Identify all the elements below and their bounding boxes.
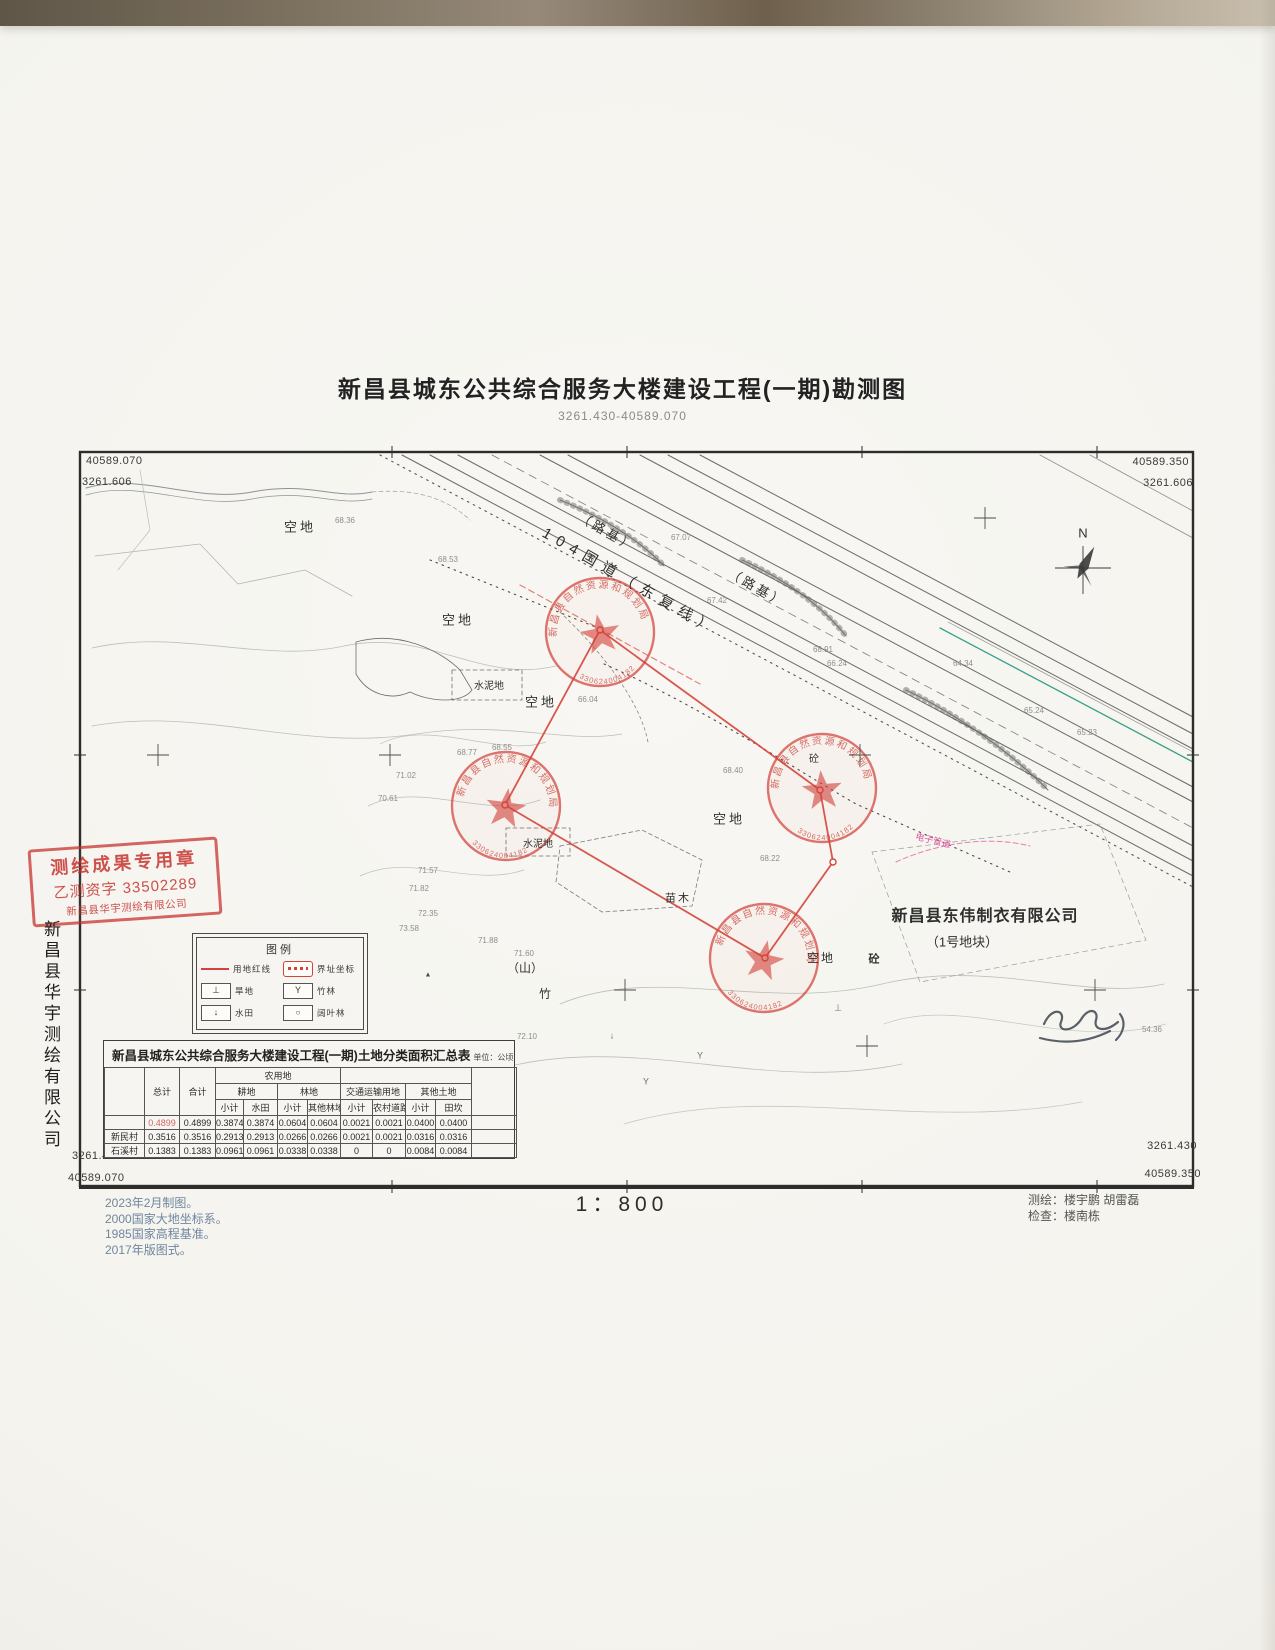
handwritten-signature: [1040, 1011, 1123, 1042]
note-line: 1985国家高程基准。: [105, 1227, 228, 1243]
map-label: 空地: [713, 813, 745, 826]
map-label: （山）: [507, 962, 543, 974]
area-value: 0.0961: [216, 1144, 244, 1158]
svg-text:330624004182: 330624004182: [795, 821, 856, 844]
area-value: 0.3516: [180, 1130, 216, 1144]
map-label: 新昌县东伟制衣有限公司: [891, 909, 1078, 925]
row-name: [105, 1116, 145, 1130]
paper-edge-shadow: [1259, 0, 1275, 1650]
elevation-label: 66.24: [827, 660, 847, 668]
svg-text:新昌县自然资源和规划局: 新昌县自然资源和规划局: [764, 730, 874, 791]
blank-cell: [472, 1144, 517, 1158]
dryland-symbol-icon: [201, 983, 231, 999]
coord-top-left-n: 3261.606: [82, 476, 132, 488]
table-unit: 单位：公顷: [473, 1053, 513, 1062]
elevation-label: 68.77: [457, 749, 477, 757]
legend-item: 水田: [201, 1004, 277, 1021]
header-rural-road: 农村道路: [373, 1100, 406, 1116]
note-line: 2023年2月制图。: [105, 1196, 228, 1212]
area-value: 0.0084: [436, 1144, 472, 1158]
map-label: 空地: [442, 614, 474, 627]
elevation-label: 68.36: [335, 517, 355, 525]
paddy-symbol-icon: [201, 1005, 231, 1021]
row-name: 石溪村: [105, 1144, 145, 1158]
area-value: 0.3874: [216, 1116, 244, 1130]
header-blank: [105, 1068, 145, 1116]
elevation-label: 70.61: [378, 795, 398, 803]
elevation-label: 72.10: [517, 1033, 537, 1041]
coord-top-right-e: 40589.350: [1133, 456, 1190, 468]
margin-company-name: 新昌县华宇测绘有限公司: [38, 920, 63, 1151]
legend-item: 阔叶林: [283, 1004, 359, 1021]
header-other-land: 其他土地: [406, 1084, 472, 1100]
header-trailing-blank: [472, 1068, 517, 1116]
bamboo-symbol-icon: [283, 983, 313, 999]
legend-inner-frame: 图例 用地红线旱地水田 界址坐标竹林阔叶林: [196, 937, 364, 1030]
map-label: （1号地块）: [926, 936, 998, 949]
map-label: 苗木: [665, 894, 691, 905]
legend-title: 图例: [201, 941, 359, 957]
table-title-text: 新昌县城东公共综合服务大楼建设工程(一期)土地分类面积汇总表: [112, 1049, 470, 1063]
header-total: 总计: [145, 1068, 180, 1116]
area-value: 0.2913: [244, 1130, 278, 1144]
redline-symbol-icon: [201, 962, 229, 976]
area-value: 0.0084: [406, 1144, 436, 1158]
area-value: 0.4899: [145, 1116, 180, 1130]
svg-text:330624004182: 330624004182: [724, 987, 786, 1017]
elevation-label: 67.07: [671, 534, 691, 542]
header-ridge: 田坎: [436, 1100, 472, 1116]
surveyed-by: 测绘：楼宇鹏 胡雷磊: [1028, 1192, 1139, 1208]
svg-text:330624004182: 330624004182: [577, 662, 639, 690]
map-label: 空地: [525, 696, 557, 709]
survey-results-seal: 测绘成果专用章 乙测资字 33502289 新昌县华宇测绘有限公司: [28, 836, 223, 927]
area-value: 0.3874: [244, 1116, 278, 1130]
elevation-label: 72.35: [418, 910, 438, 918]
map-scale: 1：800: [552, 1188, 692, 1218]
note-line: 2000国家大地坐标系。: [105, 1212, 228, 1228]
map-label: ⊥: [834, 1004, 842, 1013]
legend-item-label: 用地红线: [233, 963, 271, 975]
elevation-label: 64.34: [953, 660, 973, 668]
page-title: 新昌县城东公共综合服务大楼建设工程(一期)勘测图: [0, 370, 1245, 404]
map-label: 电子管道: [914, 832, 951, 849]
header-cultivated: 耕地: [216, 1084, 278, 1100]
map-label: 水泥地: [523, 840, 553, 850]
elevation-label: 65.24: [1024, 707, 1044, 715]
area-value: 0.0338: [278, 1144, 308, 1158]
area-value: 0.2913: [216, 1130, 244, 1144]
area-value: 0.1383: [180, 1144, 216, 1158]
blank-cell: [472, 1116, 517, 1130]
legend-column-right: 界址坐标竹林阔叶林: [283, 960, 359, 1021]
elevation-label: 65.23: [1077, 729, 1097, 737]
elevation-label: 66.04: [578, 696, 598, 704]
map-label: 空地: [284, 521, 316, 534]
map-label: Y: [643, 1078, 649, 1087]
header-subtotal: 小计: [341, 1100, 373, 1116]
scanned-survey-map-page: 新昌县城东公共综合服务大楼建设工程(一期)勘测图 3261.430-40589.…: [0, 0, 1275, 1650]
elevation-label: 71.60: [514, 950, 534, 958]
map-label: 砼: [869, 955, 880, 966]
header-paddy: 水田: [244, 1100, 278, 1116]
coord-top-left-e: 40589.070: [86, 455, 143, 467]
round-seal: 新昌县自然资源和规划局330624004182: [763, 729, 880, 846]
header-subtotal: 小计: [278, 1100, 308, 1116]
area-value: 0.3516: [145, 1130, 180, 1144]
note-line: 2017年版图式。: [105, 1243, 228, 1259]
broadleaf-symbol-icon: [283, 1005, 313, 1021]
area-value: 0.0338: [308, 1144, 341, 1158]
legend-item: 界址坐标: [283, 960, 359, 977]
area-value: 0.0021: [373, 1116, 406, 1130]
checked-by: 检查：楼南栋: [1028, 1208, 1139, 1224]
legend-item-label: 旱地: [235, 985, 254, 997]
area-value: 0.0316: [436, 1130, 472, 1144]
map-canvas: 新昌县自然资源和规划局330624004182新昌县自然资源和规划局330624…: [0, 0, 1275, 1650]
coordinate-range-subtitle: 3261.430-40589.070: [0, 409, 1245, 423]
map-label: ↓: [610, 1032, 615, 1041]
legend-box: 图例 用地红线旱地水田 界址坐标竹林阔叶林: [192, 933, 368, 1034]
header-subtotal: 小计: [406, 1100, 436, 1116]
title-block: 新昌县城东公共综合服务大楼建设工程(一期)勘测图 3261.430-40589.…: [0, 370, 1245, 423]
elevation-label: 68.55: [492, 744, 512, 752]
map-label: 空地: [807, 952, 835, 964]
area-value: 0.0400: [436, 1116, 472, 1130]
area-value: 0: [373, 1144, 406, 1158]
area-value: 0.0021: [373, 1130, 406, 1144]
area-summary-table-box: 新昌县城东公共综合服务大楼建设工程(一期)土地分类面积汇总表单位：公顷 总计 合…: [103, 1040, 515, 1159]
elevation-label: 54.36: [1142, 1026, 1162, 1034]
legend-item-label: 竹林: [317, 985, 336, 997]
area-value: 0.0021: [341, 1130, 373, 1144]
legend-column-left: 用地红线旱地水田: [201, 960, 277, 1021]
legend-item: 用地红线: [201, 960, 277, 977]
area-value: 0.4899: [180, 1116, 216, 1130]
header-forest: 林地: [278, 1084, 341, 1100]
header-agri: 农用地: [216, 1068, 341, 1084]
red-land-boundary: [502, 585, 836, 961]
area-value: 0.0021: [341, 1116, 373, 1130]
map-label: ▲: [425, 972, 432, 979]
map-label: N: [1078, 527, 1087, 540]
legend-item-label: 界址坐标: [317, 963, 355, 975]
elevation-label: 68.91: [813, 646, 833, 654]
table-row: 新民村0.35160.35160.29130.29130.02660.02660…: [105, 1130, 517, 1144]
map-label: （路基）: [726, 566, 788, 609]
header-other-forest: 其他林地: [308, 1100, 341, 1116]
header-transport: 交通运输用地: [341, 1084, 406, 1100]
coord-top-right-n: 3261.606: [1143, 477, 1193, 489]
map-label: 竹: [539, 988, 551, 1000]
elevation-label: 68.40: [723, 767, 743, 775]
elevation-label: 68.22: [760, 855, 780, 863]
legend-item-label: 阔叶林: [317, 1007, 346, 1019]
row-name: 新民村: [105, 1130, 145, 1144]
photo-edge-strip: [0, 0, 1275, 26]
footer-credits: 测绘：楼宇鹏 胡雷磊 检查：楼南栋: [1028, 1192, 1139, 1224]
table-row: 0.48990.48990.38740.38740.06040.06040.00…: [105, 1116, 517, 1130]
area-value: 0.0961: [244, 1144, 278, 1158]
map-label: 砼: [809, 755, 819, 765]
area-value: 0.0604: [278, 1116, 308, 1130]
elevation-label: 73.58: [399, 925, 419, 933]
area-value: 0.0604: [308, 1116, 341, 1130]
coord-bottom-right-n: 3261.430: [1147, 1140, 1197, 1152]
map-label: Y: [697, 1052, 703, 1061]
coord-bottom-right-e: 40589.350: [1145, 1168, 1202, 1180]
area-value: 0.0266: [278, 1130, 308, 1144]
table-row: 石溪村0.13830.13830.09610.09610.03380.03380…: [105, 1144, 517, 1158]
elevation-label: 68.53: [438, 556, 458, 564]
legend-item: 竹林: [283, 982, 359, 999]
elevation-label: 67.42: [707, 597, 727, 605]
area-value: 0.1383: [145, 1144, 180, 1158]
north-arrow-icon: [1055, 538, 1111, 594]
area-value: 0.0400: [406, 1116, 436, 1130]
header-sum: 合计: [180, 1068, 216, 1116]
table-title: 新昌县城东公共综合服务大楼建设工程(一期)土地分类面积汇总表单位：公顷: [104, 1041, 514, 1067]
area-summary-table: 总计 合计 农用地 耕地 林地 交通运输用地 其他土地 小计 水田 小计 其他林…: [104, 1067, 517, 1158]
svg-text:330624004182: 330624004182: [469, 837, 530, 863]
blank-cell: [472, 1130, 517, 1144]
elevation-label: 71.02: [396, 772, 416, 780]
area-value: 0: [341, 1144, 373, 1158]
legend-item-label: 水田: [235, 1007, 254, 1019]
footer-notes: 2023年2月制图。 2000国家大地坐标系。 1985国家高程基准。 2017…: [105, 1196, 228, 1258]
header-subtotal: 小计: [216, 1100, 244, 1116]
jzb-symbol-icon: [283, 961, 313, 977]
area-value: 0.0266: [308, 1130, 341, 1144]
elevation-label: 71.57: [418, 867, 438, 875]
elevation-label: 71.88: [478, 937, 498, 945]
header-agri-blank: [341, 1068, 472, 1084]
map-label: 水泥地: [474, 682, 504, 692]
legend-item: 旱地: [201, 982, 277, 999]
area-value: 0.0316: [406, 1130, 436, 1144]
elevation-label: 71.82: [409, 885, 429, 893]
coord-bottom-left-e: 40589.070: [68, 1172, 125, 1184]
